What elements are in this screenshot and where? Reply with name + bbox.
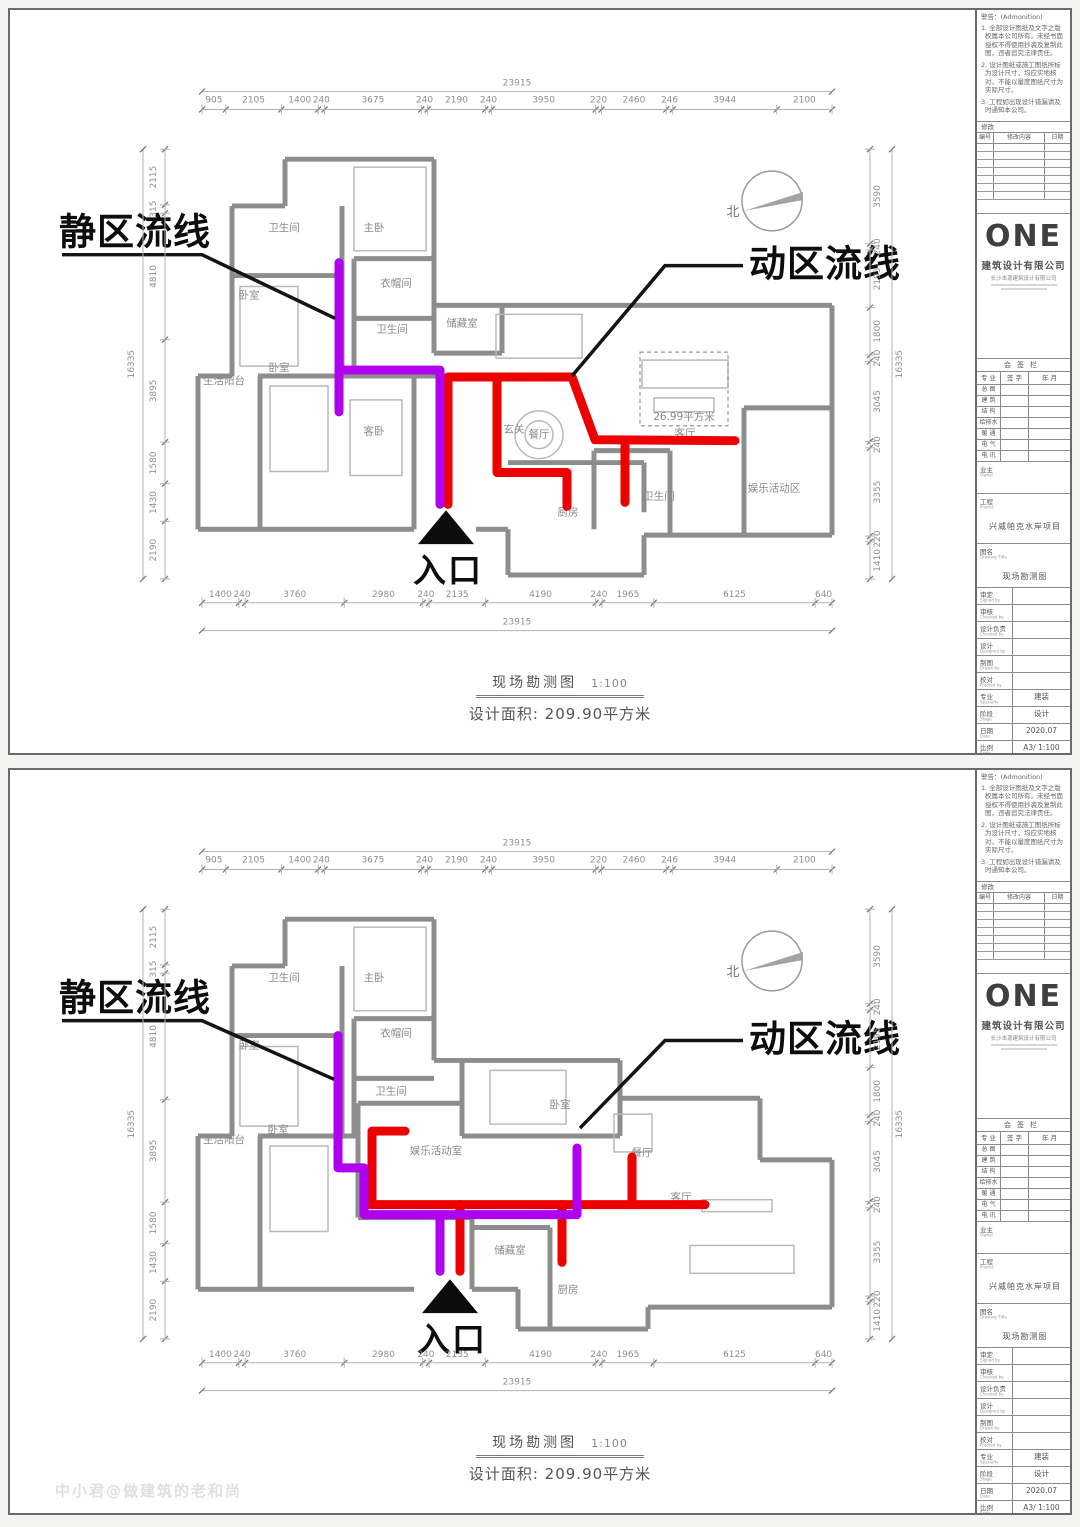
owner-label-cn: 业主 [980, 1224, 1070, 1234]
revision-col-date: 日期 [1045, 133, 1070, 143]
room-label: 卧室 [269, 361, 290, 374]
titleblock-row: 比例ScaleA3/ 1:100 [977, 1501, 1070, 1515]
revision-col-no: 编号 [977, 893, 994, 903]
dim-value: 2190 [445, 856, 468, 866]
dim-value: 1430 [149, 491, 159, 514]
dim-value: 1800 [873, 1080, 883, 1103]
north-label: 北 [727, 205, 740, 220]
dim-value: 2195 [873, 1027, 883, 1050]
dim-value: 246 [661, 96, 678, 106]
row-label-en: Proofed by [980, 684, 1009, 689]
titleblock-row: 设计负责Checked by [977, 1382, 1070, 1399]
titleblock-row: 审定Signed by [977, 588, 1070, 605]
row-label-cn: 阶段 [980, 1468, 1012, 1478]
signoff-columns: 专 业 签 字 年 月 [977, 1132, 1070, 1145]
dim-value: 220 [590, 96, 607, 106]
room-label: 衣帽间 [380, 277, 411, 290]
dim-value: 3760 [283, 1350, 306, 1360]
signoff-specialty: 电 气 [977, 1200, 1001, 1210]
row-label-cn: 审定 [980, 1349, 1012, 1359]
revision-header: 修改 [977, 882, 1070, 893]
signoff-col-specialty: 专 业 [977, 1132, 1001, 1144]
revision-row [977, 152, 1070, 160]
row-label-en: Scale [980, 1512, 1009, 1515]
furniture-bed-master [354, 167, 426, 251]
signoff-specialty: 总 图 [977, 385, 1001, 395]
revision-row [977, 904, 1070, 912]
dim-value: 240 [417, 590, 434, 600]
row-label-cn: 校对 [980, 1434, 1012, 1444]
revision-rows [977, 904, 1070, 960]
row-label-cn: 审核 [980, 606, 1012, 616]
dim-total: 23915 [503, 79, 532, 89]
dim-total: 16335 [127, 1110, 137, 1138]
drawing-name-box: 图名 Drawing Title 现场勘测图 [977, 1304, 1070, 1348]
row-label-en: Drawn by [980, 667, 1009, 672]
room-label: 卫生间 [268, 221, 299, 234]
signoff-specialty: 电 气 [977, 440, 1001, 450]
room-label: 生活阳台 [203, 1133, 245, 1146]
dim-value: 240 [873, 436, 883, 453]
row-value [1013, 622, 1070, 638]
title-block: 警告：(Admonition) 1. 全部设计图纸及文字之版权属本公司所有。未经… [975, 10, 1070, 753]
dim-value: 1580 [149, 451, 159, 474]
row-label-en: Specialty [980, 1461, 1009, 1466]
page: { "annotations": { "quiet_label": "静区流线"… [0, 0, 1080, 1527]
dim-value: 2105 [242, 96, 265, 106]
dim-value: 240 [313, 96, 330, 106]
signoff-specialty: 建 筑 [977, 396, 1001, 406]
signoff-header: 会签栏 [977, 1119, 1070, 1132]
owner-label-cn: 业主 [980, 464, 1070, 474]
entrance-label: 入口 [413, 551, 483, 590]
floor-plan: 卫生间主卧卧室衣帽间卫生间生活阳台卧室娱乐活动室卧室餐厅客厅储藏室厨房静区流线动… [10, 770, 975, 1513]
north-needle-icon [744, 192, 803, 211]
row-value [1013, 1416, 1070, 1432]
dim-value: 2100 [793, 856, 816, 866]
row-value [1013, 1382, 1070, 1398]
row-label-cn: 设计负责 [980, 1383, 1012, 1393]
furniture-long-dining-table [496, 314, 582, 358]
drawing-footer: 现场勘测图1:100 设计面积: 209.90平方米 [360, 1432, 760, 1484]
design-area-text: 设计面积: 209.90平方米 [360, 1463, 760, 1484]
titleblock-divider [977, 200, 1070, 214]
dim-value: 4810 [149, 265, 159, 288]
row-value [1013, 639, 1070, 655]
warning-section: 警告：(Admonition) 1. 全部设计图纸及文字之版权属本公司所有。未经… [977, 10, 1070, 122]
row-label-en: Signed by [980, 599, 1009, 604]
company-name-block: 建筑设计有限公司 长沙本源建筑设计有限公司 [977, 258, 1070, 302]
room-label: 卧室 [550, 1098, 571, 1111]
signoff-row: 给排水 [977, 1178, 1070, 1189]
dim-value: 1580 [149, 1211, 159, 1234]
signoff-row: 结 构 [977, 1167, 1070, 1178]
company-address-line [1001, 288, 1047, 290]
row-value [1013, 1433, 1070, 1449]
dim-value: 2460 [622, 96, 645, 106]
dim-value: 2980 [372, 1350, 395, 1360]
dim-value: 3895 [149, 380, 159, 403]
drawing-name-box: 图名 Drawing Title 现场勘测图 [977, 544, 1070, 588]
dim-total: 16335 [895, 1110, 905, 1138]
room-label: 储藏室 [446, 316, 477, 329]
row-label-cn: 设计负责 [980, 623, 1012, 633]
drawing-scale: 1:100 [591, 677, 628, 690]
dim-value: 1430 [149, 1251, 159, 1274]
north-label: 北 [727, 965, 740, 980]
row-value: 设计 [1013, 1467, 1070, 1483]
revision-row [977, 160, 1070, 168]
dim-total: 16335 [127, 350, 137, 378]
dim-value: 315 [149, 960, 159, 977]
row-value: A3/ 1:100 [1013, 741, 1070, 755]
project-label-en: Project [980, 506, 1061, 511]
row-label-en: Designed by [980, 1410, 1009, 1415]
signoff-row: 建 筑 [977, 396, 1070, 407]
dim-value: 1400 [209, 590, 232, 600]
row-label-en: Date [980, 735, 1009, 740]
company-address-line [991, 1044, 1057, 1046]
drawing-title: 现场勘测图 [492, 675, 577, 691]
room-label: 娱乐活动室 [410, 1144, 462, 1157]
dim-value: 240 [416, 856, 433, 866]
quiet-flow-line [339, 370, 440, 504]
dim-value: 905 [205, 856, 222, 866]
row-label-en: Stage [980, 1478, 1009, 1483]
drawing-name-label-cn: 图名 [980, 1306, 1070, 1316]
signoff-col-date: 年 月 [1029, 372, 1070, 384]
dim-value: 4190 [529, 590, 552, 600]
warning-item: 1. 全部设计图纸及文字之版权属本公司所有。未经书面授权不得使用抄袭及复制此图，… [985, 24, 1066, 58]
row-label-en: Specialty [980, 701, 1009, 706]
drawing-title-line: 现场勘测图1:100 [476, 1432, 644, 1458]
titleblock-row: 阶段Stage设计 [977, 1467, 1070, 1484]
project-label-cn: 工程 [980, 1256, 1070, 1266]
owner-box: 业主 Owner [977, 462, 1070, 494]
signoff-specialty: 电 讯 [977, 451, 1001, 461]
room-label: 娱乐活动区 [748, 481, 800, 494]
dim-total: 16335 [895, 350, 905, 378]
row-value: A3/ 1:100 [1013, 1501, 1070, 1515]
revision-col-content: 修改内容 [994, 893, 1045, 903]
revision-columns: 编号 修改内容 日期 [977, 893, 1070, 904]
dim-value: 4190 [529, 1350, 552, 1360]
quiet-zone-flow-label: 静区流线 [59, 977, 211, 1020]
titleblock-row: 日期Date2020.07 [977, 1484, 1070, 1501]
dim-value: 240 [590, 1350, 607, 1360]
revision-row [977, 936, 1070, 944]
dim-value: 3760 [283, 590, 306, 600]
dim-value: 3895 [149, 1140, 159, 1163]
titleblock-row: 专业Specialty建装 [977, 690, 1070, 707]
revision-row [977, 944, 1070, 952]
furniture-tv-cabinet [654, 398, 714, 412]
signoff-col-date: 年 月 [1029, 1132, 1070, 1144]
company-address-line [1001, 1048, 1047, 1050]
company-logo: ONE [977, 214, 1070, 258]
warning-section: 警告：(Admonition) 1. 全部设计图纸及文字之版权属本公司所有。未经… [977, 770, 1070, 882]
signoff-columns: 专 业 签 字 年 月 [977, 372, 1070, 385]
project-label-cn: 工程 [980, 496, 1070, 506]
dim-value: 1400 [209, 1350, 232, 1360]
row-label-cn: 校对 [980, 674, 1012, 684]
dim-value: 3944 [713, 856, 736, 866]
signoff-row: 电 气 [977, 1200, 1070, 1211]
furniture-sofa [642, 360, 728, 388]
titleblock-spacer [977, 302, 1070, 359]
furniture-bed [490, 1070, 566, 1124]
dim-value: 4810 [149, 1025, 159, 1048]
row-label-cn: 制图 [980, 657, 1012, 667]
drawing-name-label-en: Drawing Title [980, 556, 1061, 561]
row-label-cn: 专业 [980, 691, 1012, 701]
titleblock-spacer [977, 1062, 1070, 1119]
signoff-row: 电 讯 [977, 1211, 1070, 1222]
titleblock-row: 设计负责Checked by [977, 622, 1070, 639]
drawing-name-label-cn: 图名 [980, 546, 1070, 556]
room-label: 储藏室 [494, 1243, 525, 1256]
titleblock-row: 审定Signed by [977, 1348, 1070, 1365]
signoff-specialty: 给排水 [977, 418, 1001, 428]
room-label: 卧室 [268, 1123, 289, 1136]
warning-item: 2. 设计图纸或施工图纸所标为设计尺寸，均应实地核对，不能以量度图纸尺寸为实际尺… [985, 821, 1066, 855]
room-label: 玄关 [504, 423, 526, 436]
titleblock-row: 校对Proofed by [977, 673, 1070, 690]
furniture-bed-master [354, 927, 426, 1011]
dim-value: 240 [417, 1350, 434, 1360]
dim-value: 3355 [873, 1241, 883, 1264]
dim-value: 2190 [445, 96, 468, 106]
row-value: 2020.07 [1013, 1484, 1070, 1500]
row-label-en: Designed by [980, 650, 1009, 655]
company-subname: 长沙本源建筑设计有限公司 [977, 274, 1070, 282]
signoff-header: 会签栏 [977, 359, 1070, 372]
revision-row [977, 928, 1070, 936]
revision-row [977, 952, 1070, 960]
row-value [1013, 1399, 1070, 1415]
dim-value: 220 [873, 530, 883, 547]
titleblock-row: 校对Proofed by [977, 1433, 1070, 1450]
title-block: 警告：(Admonition) 1. 全部设计图纸及文字之版权属本公司所有。未经… [975, 770, 1070, 1513]
titleblock-row: 审核Checked by [977, 605, 1070, 622]
signoff-specialty: 总 图 [977, 1145, 1001, 1155]
dim-value: 2115 [149, 926, 159, 949]
signoff-rows: 总 图建 筑结 构给排水暖 通电 气电 讯 [977, 1145, 1070, 1222]
row-label-en: Scale [980, 752, 1009, 755]
project-box: 工程 Project 兴威帕克水岸项目 [977, 494, 1070, 544]
signoff-specialty: 暖 通 [977, 1189, 1001, 1199]
dim-value: 1965 [616, 1350, 639, 1360]
dim-value: 220 [873, 1290, 883, 1307]
signoff-col-signature: 签 字 [1001, 372, 1029, 384]
room-label: 生活阳台 [203, 374, 245, 387]
north-needle-icon [744, 952, 803, 971]
room-label: 主卧 [364, 221, 386, 234]
titleblock-row: 专业Specialty建装 [977, 1450, 1070, 1467]
room-label: 卫生间 [268, 971, 299, 984]
row-value [1013, 605, 1070, 621]
company-name: 建筑设计有限公司 [977, 1018, 1070, 1032]
titleblock-divider [977, 960, 1070, 974]
room-label: 客卧 [364, 425, 386, 438]
signoff-specialty: 结 构 [977, 407, 1001, 417]
room-label: 衣帽间 [380, 1027, 411, 1040]
dim-value: 1800 [873, 320, 883, 343]
signoff-row: 结 构 [977, 407, 1070, 418]
dim-value: 2115 [149, 166, 159, 189]
area-label: 26.99平方米 [653, 410, 715, 423]
dim-value: 240 [233, 590, 250, 600]
dim-value: 6125 [723, 1350, 746, 1360]
room-label: 主卧 [364, 971, 386, 984]
dim-value: 240 [416, 96, 433, 106]
signature-rows: 审定Signed by审核Checked by设计负责Checked by设计D… [977, 1348, 1070, 1513]
signoff-row: 电 气 [977, 440, 1070, 451]
room-label: 餐厅 [529, 428, 550, 441]
row-value: 建装 [1013, 1450, 1070, 1466]
dim-value: 1400 [288, 856, 311, 866]
project-box: 工程 Project 兴威帕克水岸项目 [977, 1254, 1070, 1304]
dim-value: 3950 [532, 856, 555, 866]
dim-value: 240 [233, 1350, 250, 1360]
row-label-cn: 审定 [980, 589, 1012, 599]
furniture-sofa [690, 1245, 794, 1273]
project-label-en: Project [980, 1266, 1061, 1271]
warning-item: 3. 工程如出现设计错漏请及时通知本公司。 [985, 98, 1066, 115]
room-label: 卫生间 [376, 322, 407, 335]
row-label-cn: 审核 [980, 1366, 1012, 1376]
dim-value: 246 [661, 856, 678, 866]
signature-rows: 审定Signed by审核Checked by设计负责Checked by设计D… [977, 588, 1070, 753]
dim-value: 1400 [288, 96, 311, 106]
room-label: 卧室 [239, 288, 260, 301]
floor-plan: 26.99平方米卫生间主卧卧室衣帽间卫生间储藏室生活阳台卧室客卧玄关餐厅客厅厨房… [10, 10, 975, 753]
row-value: 2020.07 [1013, 724, 1070, 740]
row-label-en: Drawn by [980, 1427, 1009, 1432]
row-label-en: Stage [980, 718, 1009, 723]
active-flow-line [497, 377, 567, 506]
dim-value: 3944 [713, 96, 736, 106]
watermark: 中小君@做建筑的老和尚 [55, 1480, 242, 1501]
dim-value: 3355 [873, 481, 883, 504]
titleblock-row: 制图Drawn by [977, 656, 1070, 673]
room-label: 厨房 [558, 1283, 579, 1296]
row-label-cn: 比例 [980, 742, 1012, 752]
dim-value: 905 [205, 96, 222, 106]
dim-value: 1965 [616, 590, 639, 600]
signoff-row: 暖 通 [977, 1189, 1070, 1200]
row-value [1013, 1348, 1070, 1364]
row-label-en: Proofed by [980, 1444, 1009, 1449]
revision-col-no: 编号 [977, 133, 994, 143]
row-label-en: Date [980, 1495, 1009, 1500]
revision-row [977, 176, 1070, 184]
company-address-line [991, 284, 1057, 286]
drawing-title: 现场勘测图 [492, 1435, 577, 1451]
revision-header: 修改 [977, 122, 1070, 133]
signoff-row: 总 图 [977, 1145, 1070, 1156]
signoff-col-signature: 签 字 [1001, 1132, 1029, 1144]
company-name-block: 建筑设计有限公司 长沙本源建筑设计有限公司 [977, 1018, 1070, 1062]
dim-value: 240 [480, 856, 497, 866]
dim-value: 3950 [532, 96, 555, 106]
drawing-scale: 1:100 [591, 1437, 628, 1450]
drawing-name-label-en: Drawing Title [980, 1316, 1061, 1321]
dim-value: 2135 [446, 1350, 469, 1360]
signoff-specialty: 给排水 [977, 1178, 1001, 1188]
quiet-zone-flow-label: 静区流线 [59, 211, 211, 254]
dim-value: 3590 [873, 945, 883, 968]
room-label: 卫生间 [643, 489, 674, 502]
dim-value: 240 [873, 998, 883, 1015]
warning-item: 3. 工程如出现设计错漏请及时通知本公司。 [985, 858, 1066, 875]
project-name: 兴威帕克水岸项目 [980, 1281, 1070, 1292]
dim-value: 2135 [446, 590, 469, 600]
revision-rows [977, 144, 1070, 200]
warning-title: 警告：(Admonition) [981, 773, 1066, 782]
dim-value: 640 [815, 1350, 832, 1360]
drawing-sheet-1: 26.99平方米卫生间主卧卧室衣帽间卫生间储藏室生活阳台卧室客卧玄关餐厅客厅厨房… [8, 8, 1072, 755]
revision-col-content: 修改内容 [994, 133, 1045, 143]
room-label: 卫生间 [375, 1084, 406, 1097]
signoff-specialty: 电 讯 [977, 1211, 1001, 1221]
row-label-cn: 制图 [980, 1417, 1012, 1427]
titleblock-row: 设计Designed by [977, 639, 1070, 656]
revision-row [977, 920, 1070, 928]
row-label-en: Checked by [980, 1376, 1009, 1381]
drawing-sheet-2: 卫生间主卧卧室衣帽间卫生间生活阳台卧室娱乐活动室卧室餐厅客厅储藏室厨房静区流线动… [8, 768, 1072, 1515]
dim-value: 2460 [622, 856, 645, 866]
drawing-name: 现场勘测图 [980, 1331, 1070, 1342]
quiet-label-leader [62, 1021, 334, 1080]
revision-row [977, 168, 1070, 176]
warning-item: 2. 设计图纸或施工图纸所标为设计尺寸，均应实地核对，不能以量度图纸尺寸为实际尺… [985, 61, 1066, 95]
dim-total: 23915 [503, 1378, 532, 1388]
dim-value: 3045 [873, 390, 883, 413]
titleblock-row: 日期Date2020.07 [977, 724, 1070, 741]
row-value: 设计 [1013, 707, 1070, 723]
owner-label-en: Owner [980, 474, 1061, 479]
revision-col-date: 日期 [1045, 893, 1070, 903]
furniture-bed [270, 1146, 328, 1232]
dim-value: 1410 [873, 549, 883, 572]
dim-value: 315 [149, 200, 159, 217]
company-logo: ONE [977, 974, 1070, 1018]
row-label-cn: 阶段 [980, 708, 1012, 718]
warning-title: 警告：(Admonition) [981, 13, 1066, 22]
dim-value: 3045 [873, 1150, 883, 1173]
owner-label-en: Owner [980, 1234, 1061, 1239]
row-value: 建装 [1013, 690, 1070, 706]
dim-value: 2190 [149, 1298, 159, 1321]
signoff-row: 建 筑 [977, 1156, 1070, 1167]
row-label-en: Checked by [980, 616, 1009, 621]
signoff-col-specialty: 专 业 [977, 372, 1001, 384]
row-label-cn: 设计 [980, 640, 1012, 650]
dim-value: 3675 [361, 96, 384, 106]
signoff-row: 电 讯 [977, 451, 1070, 462]
row-value [1013, 656, 1070, 672]
dim-total: 23915 [503, 839, 532, 849]
active-label-leader [580, 1041, 743, 1129]
dim-value: 2100 [793, 96, 816, 106]
dim-value: 2195 [873, 267, 883, 290]
row-label-en: Checked by [980, 1393, 1009, 1398]
row-label-cn: 日期 [980, 725, 1012, 735]
dim-value: 240 [590, 590, 607, 600]
dim-value: 2190 [149, 538, 159, 561]
dim-value: 3590 [873, 185, 883, 208]
